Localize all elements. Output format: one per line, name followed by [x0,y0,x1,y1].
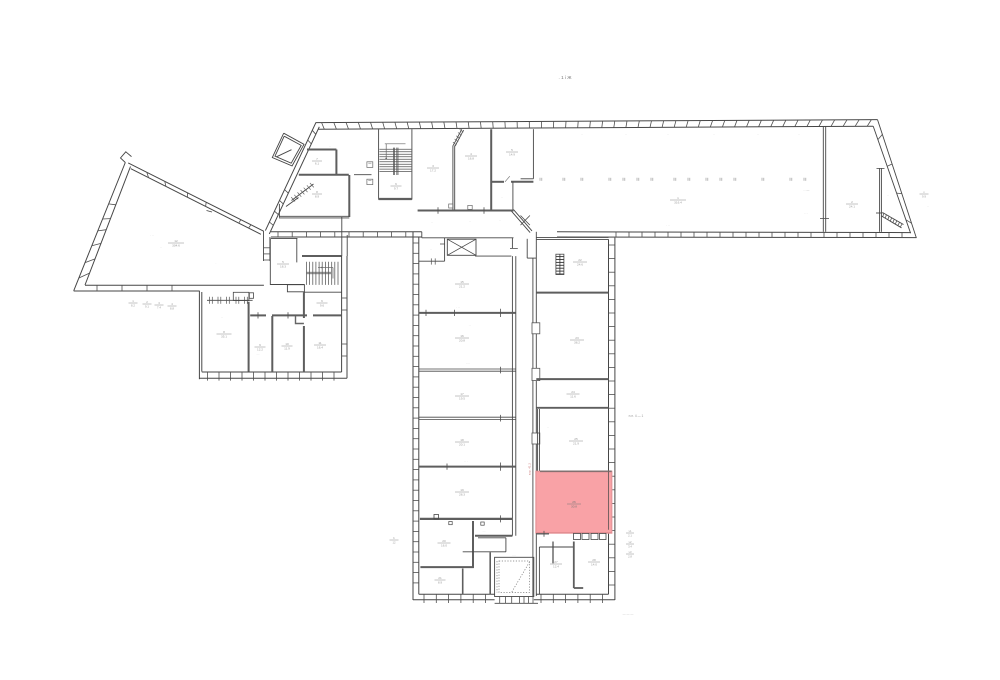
svg-text:· · ·: · · · [804,211,808,215]
svg-text:17.2: 17.2 [430,168,436,172]
svg-text:··: ·· [757,133,759,137]
svg-text:15: 15 [460,280,464,284]
svg-text:··: ·· [302,155,304,159]
svg-text:· ·: · · [499,218,502,222]
svg-text:11.6: 11.6 [570,394,576,398]
svg-text:316.4: 316.4 [674,200,682,204]
svg-text:··: ·· [887,193,889,197]
svg-text:3.4: 3.4 [628,544,632,548]
svg-text:5: 5 [282,260,284,264]
svg-text:12.4: 12.4 [553,564,559,568]
svg-text:21: 21 [438,576,442,580]
svg-text:6: 6 [321,299,323,303]
svg-text:· ··: · ·· [150,233,154,237]
svg-text:35.1: 35.1 [221,334,227,338]
svg-text:9.9: 9.9 [922,194,926,198]
svg-text:22: 22 [578,258,582,262]
svg-text:8.2: 8.2 [131,303,135,307]
svg-text:··: ·· [395,161,397,165]
svg-text:21.9: 21.9 [573,441,579,445]
svg-text:30.8: 30.8 [571,504,577,508]
svg-text:8: 8 [223,330,225,334]
svg-text:. 1 і Ж: . 1 і Ж [559,75,573,80]
svg-text:9.1: 9.1 [145,304,149,308]
svg-text:·· ··: ·· ·· [466,361,471,365]
svg-text:8.9: 8.9 [438,580,443,584]
svg-text:7.4: 7.4 [157,305,161,309]
svg-text:21.2: 21.2 [459,284,465,288]
svg-text:· ·: · · [469,219,472,223]
svg-text:··: ·· [927,204,929,208]
svg-text:11: 11 [318,341,321,345]
svg-text:· ·: · · [431,220,434,224]
svg-text:··: ·· [501,195,503,199]
svg-text:··: ·· [625,133,627,137]
svg-text:28.3: 28.3 [459,492,465,496]
svg-text:12: 12 [393,540,396,544]
svg-text:24.6: 24.6 [577,262,583,266]
svg-text:25: 25 [574,437,578,441]
svg-text:н.п. 4 — 1: н.п. 4 — 1 [629,414,644,418]
svg-text:9.6: 9.6 [320,303,325,307]
svg-text:38.2: 38.2 [574,340,580,344]
svg-text:6.1: 6.1 [315,161,320,165]
svg-text:12.2: 12.2 [257,347,263,351]
svg-text:20.8: 20.8 [459,338,465,342]
svg-text:— — —: — — — [623,612,634,616]
svg-text:·: · [216,261,217,265]
svg-text:28: 28 [592,558,596,562]
svg-text:4: 4 [470,152,472,156]
svg-text:11.9: 11.9 [284,346,290,350]
svg-text:9.7: 9.7 [394,186,399,190]
svg-text:16.8: 16.8 [468,156,474,160]
svg-text:··: ·· [430,247,432,251]
svg-text:304.6: 304.6 [172,243,180,247]
svg-text:24.1: 24.1 [849,204,855,208]
svg-text:· ··: · ·· [456,305,460,309]
svg-text:16.4: 16.4 [317,345,323,349]
svg-text:8.8: 8.8 [170,306,174,310]
svg-text:···: ··· [483,529,486,533]
svg-text:26: 26 [572,500,576,504]
svg-text:9: 9 [259,343,261,347]
svg-text:16: 16 [460,334,464,338]
svg-text:12: 12 [174,239,178,243]
svg-text:8.9: 8.9 [315,194,320,198]
svg-text:··: ·· [221,315,223,319]
svg-text:··· —: ··· — [803,188,810,192]
svg-text:· ·: · · [469,323,472,327]
svg-text:18: 18 [460,438,464,442]
svg-text:2.8: 2.8 [628,554,632,558]
svg-text:3: 3 [432,164,434,168]
svg-text:2: 2 [851,200,853,204]
svg-text:ч3: ч3 [629,550,632,554]
svg-text:· ··: · ·· [666,223,670,227]
svg-text:24: 24 [571,390,575,394]
svg-text:14.9: 14.9 [509,152,515,156]
svg-text:8: 8 [316,190,318,194]
svg-text:19.5: 19.5 [459,396,465,400]
svg-text:14.0: 14.0 [591,562,597,566]
svg-text:1: 1 [677,196,679,200]
svg-text:···: ··· [257,352,260,356]
svg-text:18.3: 18.3 [280,264,286,268]
svg-text:20: 20 [442,539,446,543]
svg-text:··: ·· [667,133,669,137]
svg-text:7: 7 [316,157,318,161]
svg-text:2.1: 2.1 [628,533,632,537]
svg-text:6: 6 [395,182,397,186]
svg-text:·· ·: ·· · [464,459,468,463]
svg-text:ч2: ч2 [629,540,632,544]
svg-text:20.1: 20.1 [459,442,465,446]
svg-text:····: ···· [512,553,516,557]
svg-text:ч1: ч1 [629,529,632,533]
svg-text:19: 19 [460,488,464,492]
svg-text:··: ·· [581,133,583,137]
svg-text:16.0: 16.0 [441,543,447,547]
svg-text:кор. 41.2: кор. 41.2 [528,463,532,476]
svg-text:··: ·· [329,144,331,148]
svg-text:5: 5 [511,148,513,152]
svg-text:17: 17 [460,392,464,396]
svg-text:10: 10 [285,342,289,346]
svg-text:··: ·· [798,133,800,137]
svg-text:27: 27 [554,560,558,564]
svg-text:··: ·· [160,245,162,249]
svg-text:··: ·· [713,133,715,137]
svg-text:··: ·· [547,425,549,429]
svg-text:23: 23 [575,336,579,340]
